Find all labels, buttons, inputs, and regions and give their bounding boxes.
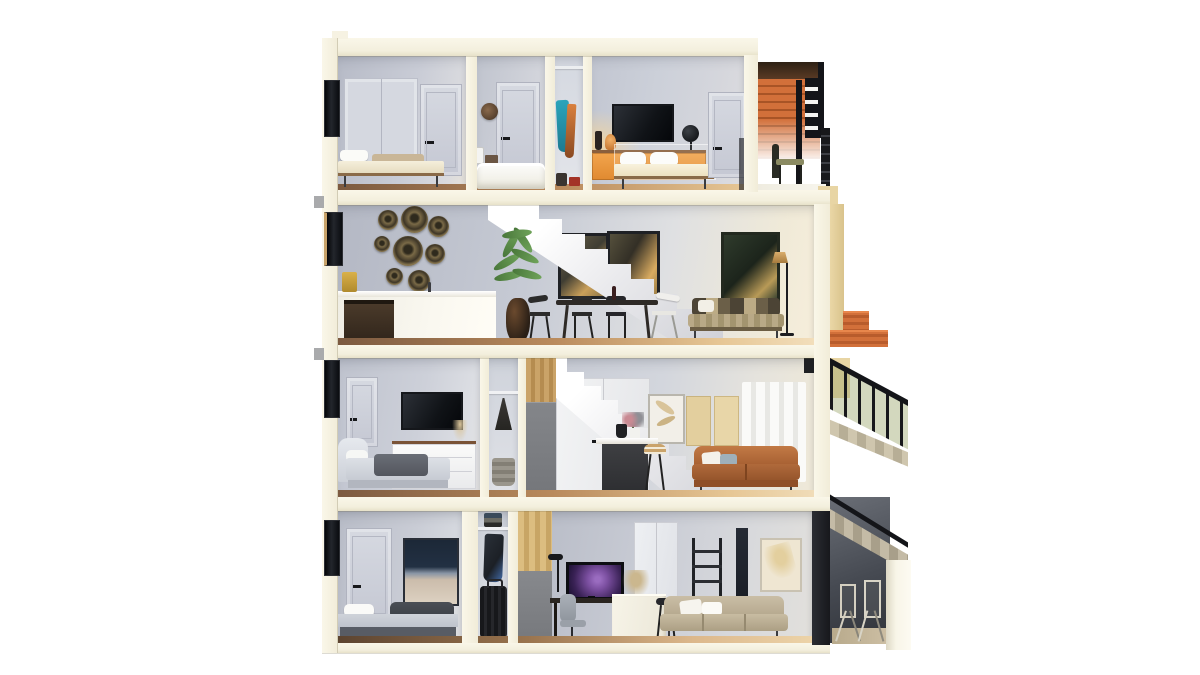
ladder-rung <box>692 580 722 583</box>
right-cut-wall <box>814 204 830 497</box>
partition-f1-b <box>508 511 518 643</box>
bed-leg <box>436 176 438 187</box>
deck-post <box>818 62 824 130</box>
slab-f4-f3 <box>322 190 830 205</box>
door-handle <box>350 418 357 421</box>
pampas-artwork <box>760 538 802 592</box>
chair-leg <box>779 165 781 186</box>
base-slab <box>322 643 830 653</box>
wall-plate <box>386 268 403 285</box>
cushion-seam <box>702 614 704 631</box>
door-handle <box>713 147 722 150</box>
left-window-f2 <box>324 360 340 418</box>
slab-f3-f2 <box>322 345 830 358</box>
partition-f4-b <box>545 55 555 192</box>
tan-facade-f3 <box>830 204 844 345</box>
roof-slab <box>322 38 758 56</box>
mattress <box>338 614 458 627</box>
nook-shelf <box>555 66 583 69</box>
feather-stroke <box>654 398 676 416</box>
palm-leaf <box>511 266 542 281</box>
lamp-pole <box>557 560 559 592</box>
chair-back <box>528 295 549 304</box>
wall-plate <box>374 236 390 252</box>
floor-lamp <box>770 252 796 338</box>
wine-bottle <box>612 286 616 300</box>
f3-floor-strip <box>338 338 814 345</box>
suitcase <box>480 586 507 638</box>
left-window-f3 <box>324 212 343 266</box>
bar-stool <box>644 444 666 496</box>
gray-panel <box>518 571 552 643</box>
partition-f1-a <box>462 511 478 643</box>
chair-back <box>560 594 576 622</box>
ladder-shelf <box>692 538 722 598</box>
framed-seascape-art <box>403 538 459 606</box>
nook-red-box <box>569 177 580 186</box>
facade-ledge-tab <box>314 348 324 360</box>
facade-ledge-tab <box>314 196 324 208</box>
bed-leg <box>622 179 624 189</box>
f4-daybed <box>338 148 446 188</box>
lamp-head <box>548 554 563 560</box>
laundry-basket <box>492 458 515 486</box>
dining-chair-white <box>648 294 682 342</box>
tan-wall-panel <box>686 396 711 446</box>
table-top <box>556 300 658 305</box>
cushion-seam <box>744 614 746 631</box>
chair-back <box>656 292 681 302</box>
wall-plate <box>378 210 398 230</box>
ladder-rung <box>692 565 722 568</box>
f4-wall-tv <box>612 104 674 142</box>
kitchen-faucet <box>428 282 431 292</box>
ladder-rail <box>692 538 695 598</box>
kettle <box>616 424 627 438</box>
partition-f4-c <box>583 55 592 192</box>
ladder-rail <box>719 538 722 598</box>
f1-floor-strip <box>338 636 812 643</box>
bed-leg <box>704 179 706 189</box>
wood-panel <box>518 511 552 571</box>
deck-chair <box>772 144 808 186</box>
left-window-f4 <box>324 80 340 137</box>
chair-leg <box>529 316 534 340</box>
f4-double-bed <box>614 144 716 189</box>
door-handle <box>425 141 434 144</box>
chair-leg <box>545 316 550 340</box>
wood-panel-corner <box>526 358 556 402</box>
bed-base <box>348 480 448 488</box>
wall-plate <box>393 236 423 266</box>
left-window-f1 <box>324 520 340 576</box>
terracotta-step-lower <box>830 330 888 347</box>
folded-clothes-stack <box>484 513 502 527</box>
dining-table <box>556 296 658 342</box>
pillow <box>340 150 368 161</box>
wall-clock <box>481 103 498 120</box>
white-pillar <box>886 560 911 650</box>
wall-plate <box>408 270 430 292</box>
mattress <box>338 161 444 173</box>
f4-bathroom-door <box>496 82 540 176</box>
wall-plate <box>401 206 428 233</box>
cutaway-scene <box>0 0 1200 675</box>
lamp-shade <box>772 252 788 263</box>
chair-seat <box>560 620 586 627</box>
f2-floor-strip <box>338 490 814 497</box>
stool-seat <box>644 444 666 454</box>
ladder-rung <box>692 550 722 553</box>
tan-wall-panel <box>714 396 739 446</box>
dining-chair-dark <box>528 296 554 340</box>
patio-folding-chair <box>858 580 884 642</box>
wall-plate <box>425 244 445 264</box>
slab-f2-f1 <box>322 497 830 511</box>
right-dark-column-f1 <box>812 511 830 645</box>
dried-flowers <box>452 420 468 442</box>
table-leg <box>562 305 569 341</box>
door-handle <box>501 137 510 140</box>
pampas-fluff <box>762 541 798 581</box>
dark-blanket <box>374 454 428 476</box>
bed-leg <box>344 176 346 187</box>
nook-shelf <box>478 527 508 530</box>
deck-rail-lower <box>821 128 830 188</box>
partition-f2-b <box>518 358 526 497</box>
lamp-base <box>780 333 794 336</box>
sofa-pillow-white <box>698 300 714 312</box>
island-base <box>602 444 648 496</box>
plant-vase <box>506 298 530 343</box>
nook-shelf <box>489 391 518 394</box>
sofa-seat <box>660 614 788 631</box>
navy-wall-strip <box>736 528 748 602</box>
black-globe <box>682 125 699 142</box>
lamp-pole <box>786 263 788 333</box>
feather-stroke <box>656 414 677 428</box>
sofa-base <box>690 327 782 331</box>
door-handle <box>352 585 361 588</box>
cushion-seam <box>745 464 747 480</box>
dark-vase <box>595 131 602 150</box>
partition-f2-a <box>480 358 489 497</box>
suitcase-handle <box>487 579 503 588</box>
chair-leg <box>800 165 802 186</box>
leather-sofa <box>692 446 800 492</box>
utensil-cup <box>342 272 357 292</box>
bed-frame-rail <box>338 173 444 176</box>
chair-leg <box>858 610 869 641</box>
nook-dark-bag <box>556 173 567 186</box>
wall-plate <box>428 216 449 237</box>
bed-frame-rail <box>614 176 714 179</box>
desk-lamp <box>548 554 568 594</box>
bathtub <box>477 163 545 189</box>
terracotta-step-upper <box>843 311 869 332</box>
f2-bed <box>338 436 450 490</box>
right-cut-wall-top <box>744 55 758 192</box>
deck-header-beam <box>758 62 820 79</box>
partition-f4-a <box>466 55 477 192</box>
gray-cabinet <box>526 402 556 497</box>
sofa-base <box>694 480 798 487</box>
hanging-coat <box>483 534 504 583</box>
sofa-leg <box>694 331 696 338</box>
chair-back <box>840 584 856 618</box>
